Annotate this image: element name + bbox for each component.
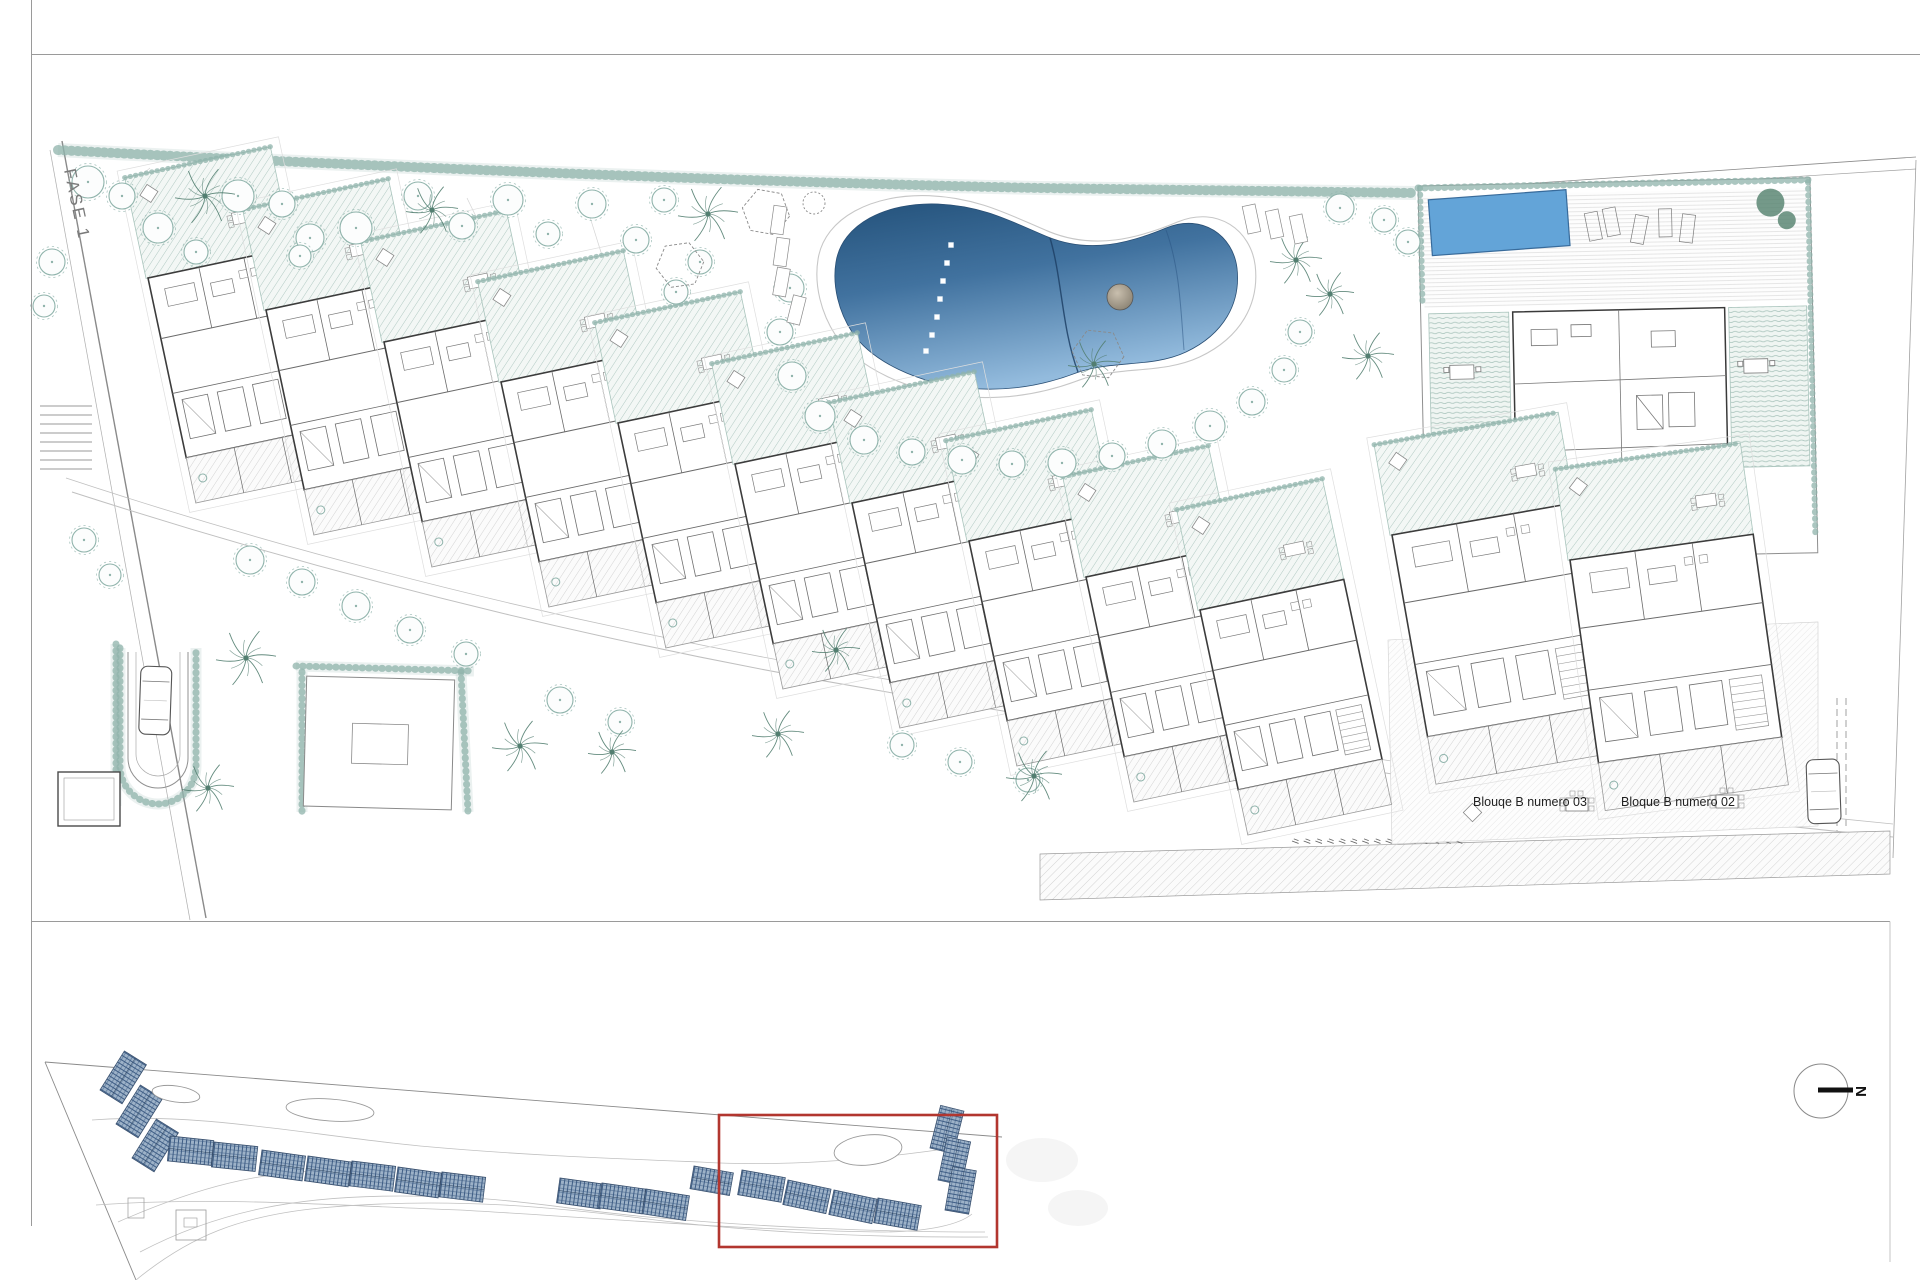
tree-icon: [1193, 409, 1228, 444]
tree-trunk: [249, 559, 251, 561]
palm-tree-icon: [678, 186, 738, 241]
palm-leaf: [600, 752, 614, 774]
north-label: N: [1852, 1086, 1869, 1097]
tree-trunk: [791, 375, 793, 377]
sun-lounger: [773, 237, 790, 267]
palm-leaf: [765, 734, 780, 758]
tree-trunk: [195, 251, 197, 253]
tree-trunk: [299, 255, 301, 257]
palm-leaf: [216, 658, 246, 661]
tick: [1306, 839, 1311, 841]
car-icon: [139, 666, 172, 735]
overview-building: [829, 1190, 877, 1224]
palm-tree-icon: [1306, 272, 1354, 316]
faded-plan-ghost: [1048, 1190, 1108, 1226]
lap-pool: [1428, 190, 1570, 256]
tree-icon: [662, 278, 691, 307]
tree-icon: [1324, 192, 1357, 225]
tree-icon: [31, 293, 58, 320]
tree-trunk: [465, 653, 467, 655]
sun-lounger: [1289, 214, 1308, 244]
tree-trunk: [591, 203, 593, 205]
tree-trunk: [409, 629, 411, 631]
palm-leaf: [752, 734, 778, 737]
palm-leaf: [1328, 272, 1342, 294]
palm-leaf: [612, 749, 636, 752]
overview-building: [349, 1161, 396, 1191]
tree-trunk: [863, 439, 865, 441]
tree-trunk: [355, 227, 357, 229]
palm-leaf: [708, 214, 711, 232]
overview-building: [557, 1178, 604, 1209]
tree-icon: [534, 220, 563, 249]
palm-leaf: [1270, 260, 1296, 263]
parking-number-mark: [1362, 839, 1369, 844]
main-pool: [817, 196, 1256, 398]
tree-trunk: [779, 331, 781, 333]
pool-step: [949, 243, 954, 248]
service-road: [1040, 831, 1890, 900]
overview-building: [874, 1198, 922, 1230]
tick: [1386, 841, 1393, 843]
tick: [1339, 841, 1346, 843]
sun-lounger: [1242, 204, 1261, 234]
tree-icon: [287, 243, 314, 270]
pool-step: [924, 349, 929, 354]
parking-number-mark: [1315, 839, 1322, 844]
palm-leaf: [1296, 257, 1322, 260]
palm-leaf: [206, 764, 221, 788]
palm-leaf: [1368, 353, 1394, 356]
overview-building: [395, 1167, 442, 1198]
palm-leaf: [432, 207, 458, 210]
palm-leaf: [708, 211, 738, 214]
sun-lounger: [1265, 209, 1284, 239]
round-pavilion: [803, 192, 825, 214]
tree-trunk: [43, 305, 45, 307]
tree-icon: [37, 247, 68, 278]
pool-step: [935, 315, 940, 320]
palm-trunk: [205, 785, 210, 790]
tree-icon: [70, 526, 99, 555]
overview-building: [642, 1189, 689, 1221]
tree-icon: [888, 731, 917, 760]
tree-trunk: [83, 539, 85, 541]
overview-building: [599, 1183, 646, 1214]
tree-icon: [1370, 206, 1399, 235]
tree-trunk: [309, 237, 311, 239]
palm-leaf: [246, 655, 276, 658]
tree-icon: [1237, 387, 1268, 418]
palm-leaf: [776, 710, 791, 734]
palm-leaf: [208, 785, 234, 788]
tree-icon: [946, 748, 975, 777]
tree-icon: [1394, 228, 1423, 257]
palm-leaf: [243, 640, 246, 658]
tree-trunk: [417, 195, 419, 197]
tree-trunk: [121, 195, 123, 197]
tree-trunk: [1061, 462, 1063, 464]
pool-step: [930, 333, 935, 338]
bloque-02-label: Bloque B numero 02: [1621, 795, 1735, 809]
palm-leaf: [1318, 294, 1332, 316]
tick: [1362, 841, 1369, 843]
palm-trunk: [705, 211, 710, 216]
tree-trunk: [959, 761, 961, 763]
tree-trunk: [157, 227, 159, 229]
tree-trunk: [911, 451, 913, 453]
overview-building: [783, 1180, 831, 1214]
palm-leaf: [678, 214, 708, 217]
palm-leaf: [705, 196, 708, 214]
tree-trunk: [619, 721, 621, 723]
overview-building: [738, 1170, 786, 1202]
parking-number-mark: [1339, 839, 1346, 844]
parking-number-mark: [1304, 839, 1311, 844]
palm-trunk: [202, 193, 207, 198]
tree-trunk: [109, 574, 111, 576]
tree-icon: [576, 188, 609, 221]
palm-tree-icon: [752, 710, 804, 758]
building-outline: [1570, 534, 1782, 763]
palm-leaf: [243, 630, 261, 658]
tick: [1294, 839, 1299, 841]
palm-leaf: [778, 731, 804, 734]
faded-plan-ghost: [1006, 1138, 1078, 1182]
tree-trunk: [547, 233, 549, 235]
palm-trunk: [517, 743, 522, 748]
tree-icon: [97, 562, 124, 589]
tree-trunk: [355, 605, 357, 607]
tree-trunk: [1383, 219, 1385, 221]
tree-trunk: [819, 415, 821, 417]
pool-island: [1107, 284, 1133, 310]
north-arrow: N: [1794, 1064, 1869, 1118]
tick: [1329, 839, 1334, 841]
tick: [1376, 839, 1381, 841]
tree-trunk: [961, 459, 963, 461]
palm-leaf: [1283, 260, 1298, 284]
tree-icon: [452, 640, 481, 669]
palm-trunk: [1031, 773, 1036, 778]
tree-trunk: [699, 261, 701, 263]
tick: [1304, 841, 1311, 843]
palm-trunk: [1091, 361, 1096, 366]
overview-building: [690, 1166, 733, 1196]
tree-icon: [234, 544, 267, 577]
palm-leaf: [588, 752, 612, 755]
tree-icon: [650, 186, 679, 215]
palm-leaf: [231, 658, 249, 686]
palm-leaf: [1355, 356, 1370, 380]
tree-trunk: [1283, 369, 1285, 371]
car-icon: [1806, 759, 1841, 824]
palm-trunk: [1293, 257, 1298, 262]
palm-trunk: [243, 655, 248, 660]
tree-icon: [402, 180, 435, 213]
tick: [1315, 841, 1322, 843]
palm-leaf: [1366, 332, 1381, 356]
overview-building: [305, 1156, 352, 1187]
tree-icon: [287, 567, 318, 598]
palm-trunk: [1327, 291, 1332, 296]
tree-icon: [545, 685, 576, 716]
tree-trunk: [1251, 401, 1253, 403]
sun-lounger: [770, 205, 787, 235]
tick: [1352, 839, 1357, 841]
parking-number-mark: [1351, 839, 1358, 844]
palm-leaf: [195, 788, 210, 812]
tick: [1327, 841, 1334, 843]
overview-faded-area: [1006, 1138, 1108, 1226]
tree-trunk: [901, 744, 903, 746]
tick: [1351, 841, 1358, 843]
tree-trunk: [1161, 443, 1163, 445]
bloque-03-label: Blouqe B numero 03: [1473, 795, 1587, 809]
palm-tree-icon: [492, 720, 548, 772]
tree-trunk: [301, 581, 303, 583]
tick: [1374, 841, 1381, 843]
tree-trunk: [635, 239, 637, 241]
parking-number-mark: [1292, 839, 1299, 844]
palm-trunk: [833, 647, 838, 652]
garden-table: [1695, 493, 1716, 508]
site-plan-sheet: Blouqe B numero 03 Bloque B numero 02 FA…: [0, 0, 1920, 1280]
overview-building: [211, 1142, 257, 1171]
palm-tree-icon: [588, 730, 636, 774]
palm-trunk: [775, 731, 780, 736]
bloque-b-cluster: [1367, 403, 1800, 820]
palm-tree-icon: [1342, 332, 1394, 380]
stairs: [40, 406, 92, 469]
tree-icon: [107, 181, 138, 212]
tree-trunk: [1027, 779, 1029, 781]
tree-icon: [340, 590, 373, 623]
tick: [1292, 841, 1299, 843]
overview-pool: [833, 1132, 904, 1169]
palm-leaf: [705, 186, 723, 214]
tree-trunk: [1209, 425, 1211, 427]
tick: [1364, 839, 1369, 841]
palm-leaf: [693, 214, 711, 242]
overview-building: [259, 1150, 306, 1181]
palm-leaf: [1306, 294, 1330, 297]
overview-building: [167, 1136, 213, 1165]
palm-leaf: [1330, 291, 1354, 294]
tree-trunk: [663, 199, 665, 201]
palm-tree-icon: [216, 630, 276, 685]
tree-trunk: [87, 181, 89, 183]
overview-building: [439, 1172, 486, 1202]
tree-trunk: [461, 225, 463, 227]
utility-building: [58, 772, 120, 826]
palm-leaf: [1342, 356, 1368, 359]
pool-step: [941, 279, 946, 284]
tree-trunk: [1339, 207, 1341, 209]
parking-number-mark: [1327, 839, 1334, 844]
parking-number-mark: [1374, 839, 1381, 844]
tree-trunk: [1011, 463, 1013, 465]
tree-icon: [395, 615, 426, 646]
tree-icon: [606, 708, 635, 737]
tree-icon: [1270, 356, 1299, 385]
tree-trunk: [559, 699, 561, 701]
pool-step: [945, 261, 950, 266]
palm-trunk: [429, 207, 434, 212]
tree-trunk: [675, 291, 677, 293]
palm-leaf: [492, 746, 520, 749]
tree-trunk: [789, 287, 791, 289]
tick: [1317, 839, 1322, 841]
tree-trunk: [1407, 241, 1409, 243]
palm-leaf: [520, 743, 548, 746]
palm-trunk: [609, 749, 614, 754]
plan-drawing: Blouqe B numero 03 Bloque B numero 02 FA…: [0, 0, 1920, 1280]
tree-trunk: [281, 203, 283, 205]
palm-leaf: [246, 658, 249, 676]
tree-icon: [1286, 318, 1315, 347]
tree-trunk: [1299, 331, 1301, 333]
tree-trunk: [1111, 455, 1113, 457]
tree-trunk: [237, 195, 239, 197]
palm-leaf: [506, 746, 523, 772]
tree-trunk: [51, 261, 53, 263]
pool-step: [938, 297, 943, 302]
tree-trunk: [507, 199, 509, 201]
tick: [1341, 839, 1346, 841]
overview-pool: [285, 1096, 374, 1124]
palm-leaf: [517, 720, 534, 746]
palm-trunk: [1365, 353, 1370, 358]
overview-keyplan: [45, 1051, 1108, 1280]
tick: [1387, 839, 1392, 841]
